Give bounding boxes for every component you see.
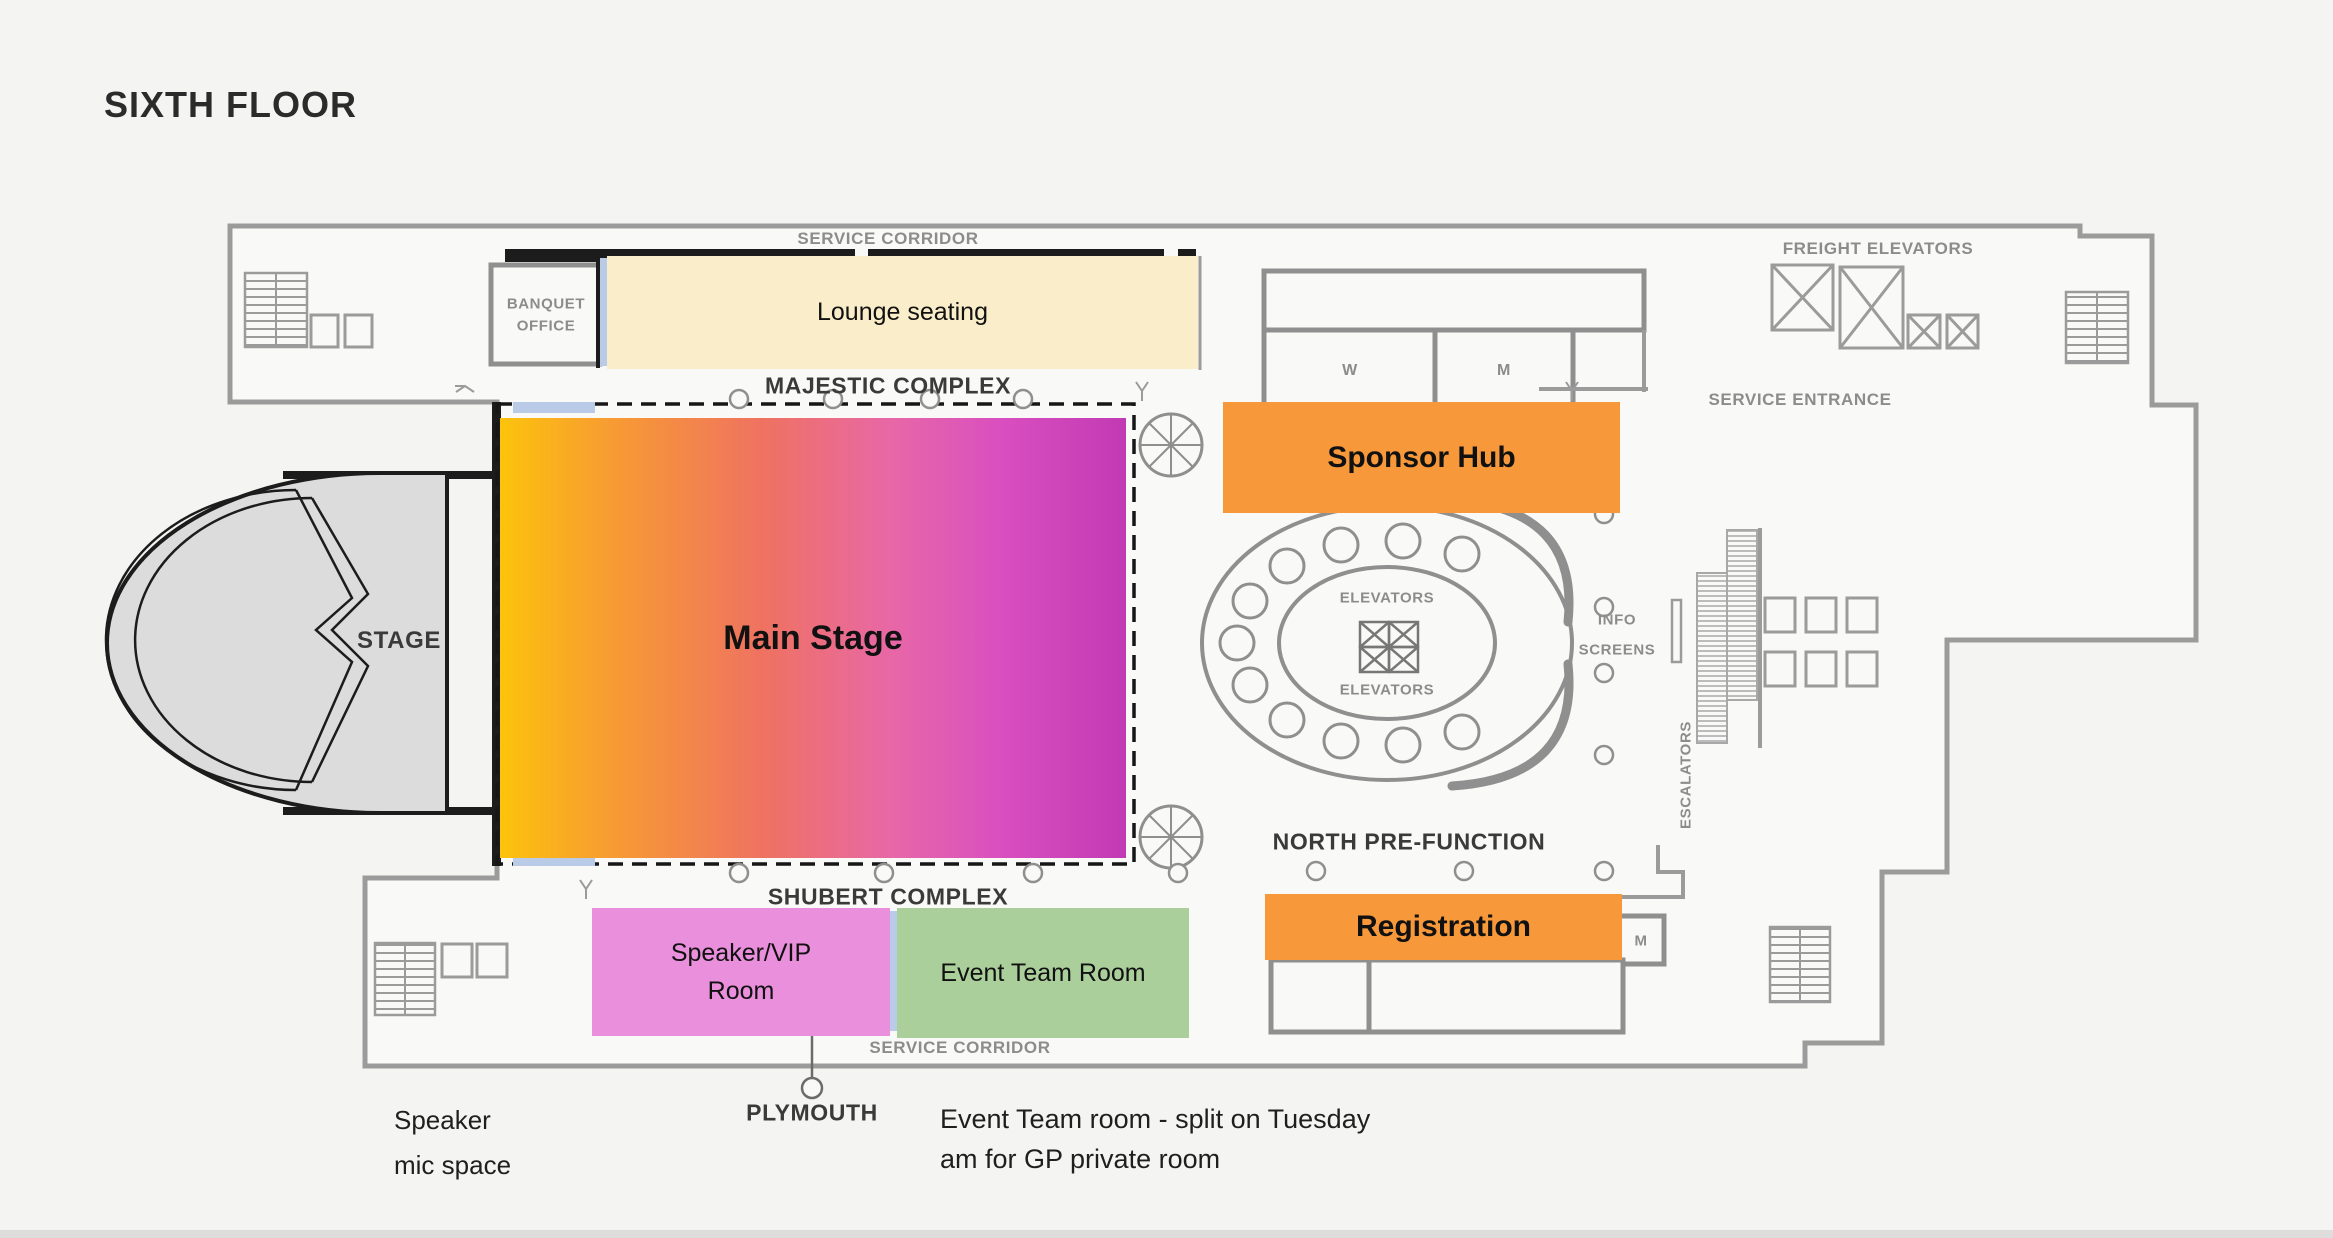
label-room-m-south: M (1634, 933, 1647, 950)
label-freight-elevators: FREIGHT ELEVATORS (1783, 239, 1974, 259)
label-service-corridor-top: SERVICE CORRIDOR (797, 229, 978, 249)
overlay-event-team-label: Event Team Room (940, 959, 1145, 988)
overlay-main-stage-label: Main Stage (723, 619, 902, 658)
stairs-icon (375, 943, 435, 1015)
overlay-speaker-vip-room: Speaker/VIP Room (592, 908, 890, 1036)
label-restroom-m: M (1497, 362, 1511, 380)
label-elevators-bottom: ELEVATORS (1340, 682, 1435, 699)
elevator-lobby (1202, 500, 1572, 786)
overlay-registration-label: Registration (1356, 910, 1531, 944)
elevator-core-icon (1360, 622, 1418, 672)
note-speaker-mic-line2: mic space (394, 1143, 511, 1188)
overlay-main-stage: Main Stage (500, 418, 1126, 858)
floor-plan-page: SIXTH FLOOR Lounge seating Sponsor Hub M… (0, 0, 2333, 1238)
note-event-team-line1: Event Team room - split on Tuesday (940, 1099, 1370, 1139)
note-event-team-line2: am for GP private room (940, 1139, 1370, 1179)
label-escalators: ESCALATORS (1678, 721, 1695, 829)
label-majestic-complex: MAJESTIC COMPLEX (765, 373, 1011, 400)
label-stage: STAGE (357, 627, 441, 655)
label-info-screens-line2: SCREENS (1579, 642, 1656, 659)
label-service-corridor-bottom: SERVICE CORRIDOR (869, 1038, 1050, 1058)
stairs-icon (1770, 927, 1830, 1002)
label-restroom-w: W (1342, 362, 1358, 380)
stairs-icon (245, 273, 307, 347)
overlay-registration: Registration (1265, 894, 1622, 960)
overlay-sponsor-hub: Sponsor Hub (1223, 402, 1620, 513)
note-speaker-mic: Speaker mic space (394, 1098, 511, 1188)
overlay-event-team-room: Event Team Room (897, 908, 1189, 1038)
overlay-speaker-vip-line2: Room (708, 972, 775, 1010)
overlay-speaker-vip-line1: Speaker/VIP (671, 934, 811, 972)
stairs-icon (2066, 292, 2128, 363)
note-speaker-mic-line1: Speaker (394, 1098, 511, 1143)
label-service-entrance: SERVICE ENTRANCE (1708, 390, 1891, 410)
overlay-lounge-label: Lounge seating (817, 298, 988, 327)
bottom-edge-strip (0, 1230, 2333, 1238)
label-shubert-complex: SHUBERT COMPLEX (768, 884, 1008, 911)
floor-plan-drawing (0, 0, 2333, 1238)
label-elevators-top: ELEVATORS (1340, 590, 1435, 607)
banquet-office-room (491, 265, 600, 364)
label-plymouth: PLYMOUTH (746, 1100, 878, 1127)
label-north-pre-function: NORTH PRE-FUNCTION (1273, 829, 1546, 856)
label-banquet-office-line2: OFFICE (517, 318, 576, 335)
label-info-screens-line1: INFO (1598, 612, 1636, 629)
overlay-sponsor-hub-label: Sponsor Hub (1327, 441, 1515, 475)
note-event-team: Event Team room - split on Tuesday am fo… (940, 1099, 1370, 1179)
overlay-lounge-seating: Lounge seating (607, 256, 1198, 369)
label-banquet-office-line1: BANQUET (507, 296, 585, 313)
page-title: SIXTH FLOOR (104, 84, 357, 126)
